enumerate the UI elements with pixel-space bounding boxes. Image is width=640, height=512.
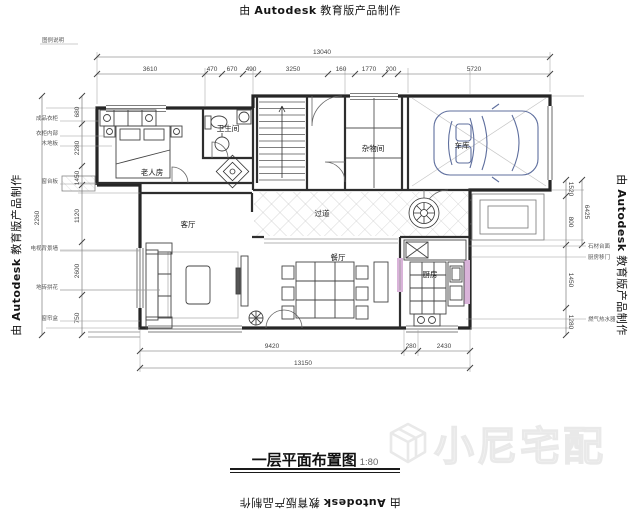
dim-seg: 1520 [567, 182, 574, 197]
kitchen-window-frame [464, 260, 470, 304]
room-label-bedroom: 老人房 [141, 167, 164, 177]
annotation-leaders: 图例说明 成品衣柜 衣柜内部 木地板 窗台板 电视背景墙 地砖拼花 窗帘盒 石材… [30, 36, 616, 323]
porch-steps [472, 194, 544, 240]
dining-table [296, 262, 354, 318]
basin [215, 137, 229, 151]
annotation: 地砖拼花 [36, 283, 59, 291]
annotation: 石材台面 [588, 242, 611, 250]
dim-seg: 490 [246, 66, 257, 73]
kitchen-fixtures [404, 240, 466, 326]
room-label-dining: 餐厅 [331, 253, 346, 262]
annotation: 燃气热水器 [588, 315, 616, 323]
dim-seg: 200 [386, 66, 397, 73]
room-label-garage: 车库 [455, 140, 470, 150]
kitchen-counter [404, 240, 466, 260]
dim-seg: 160 [336, 66, 347, 73]
storage-door-arc [325, 162, 345, 182]
dining-furniture [282, 262, 388, 319]
dim-seg: 5720 [467, 66, 482, 73]
dim-seg: 470 [207, 66, 218, 73]
tv-cabinet [241, 256, 248, 306]
coffee-table [186, 266, 210, 304]
sofa-back [146, 250, 158, 320]
annotation: 厨房移门 [588, 253, 610, 261]
dim-bottom-total: 13150 [294, 360, 312, 367]
dimensions-left: 680 2280 1450 1120 2600 750 2260 [34, 93, 85, 338]
exterior-steps [88, 332, 140, 337]
staircase [259, 102, 305, 180]
dim-seg: 2280 [74, 140, 81, 155]
toilet-tank [205, 116, 211, 129]
dimensions-right: 1520 800 1450 1280 6425 [563, 177, 590, 338]
dining-beam [264, 239, 398, 243]
dim-seg: 1120 [74, 209, 81, 223]
dim-seg: 1450 [567, 273, 574, 288]
dim-seg: 280 [406, 343, 417, 350]
dimensions-bottom: 9420 280 2430 13150 [137, 343, 473, 371]
dim-seg: 1450 [74, 170, 81, 185]
room-label-bathroom: 卫生间 [217, 123, 240, 133]
annotation-top-left: 图例说明 [42, 36, 65, 44]
dim-seg: 1280 [567, 315, 574, 330]
dim-seg: 1770 [362, 66, 377, 73]
sideboard [374, 262, 388, 302]
annotation: 电视背景墙 [30, 244, 58, 252]
annotation: 窗台板 [41, 177, 58, 185]
dim-seg: 2430 [437, 343, 452, 350]
dimensions-top: 13040 3610 470 670 490 3250 160 1770 200… [94, 49, 553, 77]
dim-seg: 9420 [265, 343, 280, 350]
tv [236, 268, 240, 294]
storage-shelves [346, 98, 401, 188]
room-label-living: 客厅 [181, 219, 196, 229]
dim-seg: 3250 [286, 66, 301, 73]
dim-left-outer: 2260 [34, 210, 41, 225]
dim-seg: 750 [74, 312, 81, 323]
dim-right-outer: 6425 [583, 205, 590, 220]
bedroom-door-arc [172, 167, 188, 183]
dim-seg: 670 [227, 66, 238, 73]
entry-door-arc [312, 96, 342, 126]
room-label-kitchen: 厨房 [423, 269, 438, 279]
room-label-hallway: 过道 [315, 208, 330, 218]
dim-top-total: 13040 [313, 49, 331, 56]
hallway-medallion [409, 198, 439, 228]
living-furniture [146, 243, 263, 328]
garage-area [412, 98, 546, 186]
annotation: 衣柜内部 [36, 129, 59, 137]
floor-plan: 13040 3610 470 670 490 3250 160 1770 200… [0, 0, 640, 512]
annotation: 成品衣柜 [36, 114, 59, 122]
dim-seg: 3610 [143, 66, 158, 73]
cad-viewport: 由 Autodesk 教育版产品制作 由 Autodesk 教育版产品制作 由 … [0, 0, 640, 512]
annotation: 木地板 [41, 139, 58, 147]
room-label-storage: 杂物间 [362, 143, 385, 153]
dim-seg: 800 [567, 217, 574, 228]
annotation: 窗帘盒 [41, 314, 58, 322]
dim-seg: 680 [74, 106, 81, 117]
dim-seg: 2600 [74, 263, 81, 278]
